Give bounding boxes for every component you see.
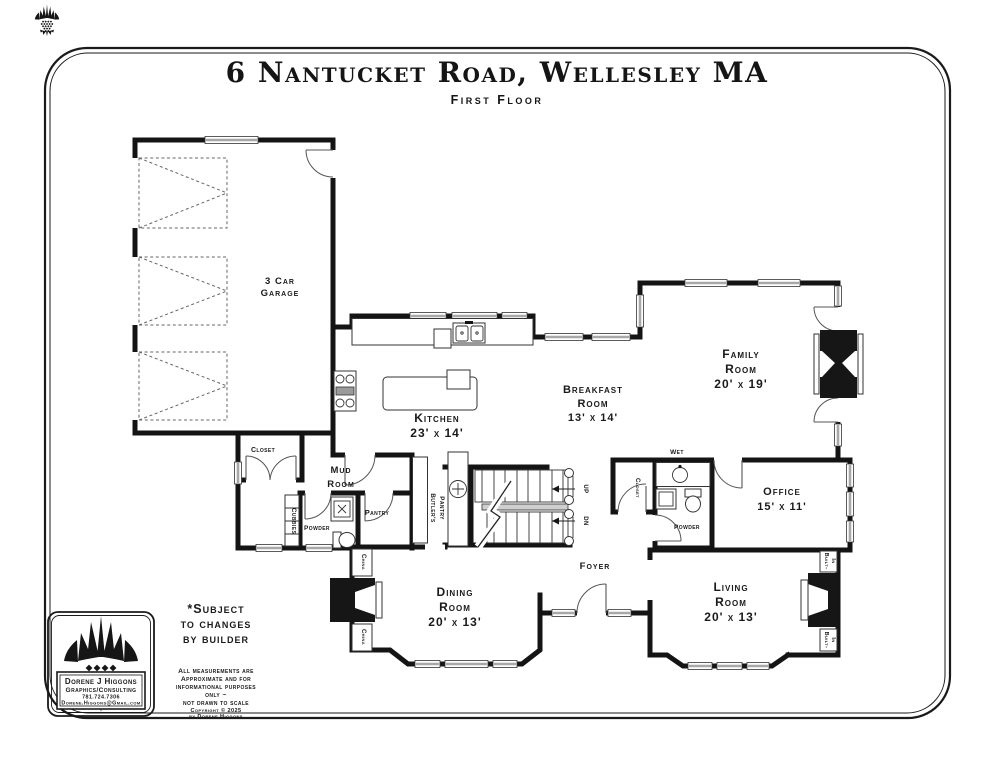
range — [334, 371, 356, 411]
corner-pineapple-icon — [35, 4, 59, 36]
family-fireplace — [814, 330, 863, 398]
room-label-closet-foyer: Closet — [634, 478, 640, 498]
label-built-in-lower: In — [830, 637, 836, 642]
disclaimer-note: All measurements are Approximate and for… — [176, 668, 256, 720]
copyright-line: by Dorene Higgons — [189, 714, 243, 720]
room-label-garage: 3 Car — [265, 276, 295, 287]
label-built-in-lower: Built- — [823, 632, 829, 649]
dishwasher — [434, 329, 451, 348]
label-stairs-down: DN — [582, 516, 588, 525]
room-dim-breakfast: 13' x 14' — [568, 412, 618, 424]
toilet — [333, 532, 355, 548]
room-dim-family: 20' x 19' — [714, 377, 767, 391]
logo-name: Dorene J Higgons — [65, 677, 137, 686]
newel-post — [565, 537, 574, 546]
disclaimer-line: informational purposes — [176, 684, 256, 691]
logo-tagline: Graphics/Consulting — [66, 687, 137, 694]
newel-post — [565, 469, 574, 478]
note-subject: *Subject — [187, 602, 244, 616]
room-dim-dining: 20' x 13' — [428, 615, 481, 629]
room-label-dining: Room — [439, 600, 471, 614]
page-subtitle: First Floor — [451, 93, 544, 107]
room-label-living: Living — [713, 580, 748, 594]
powder-sink — [656, 489, 676, 509]
floor-plan-page: 6 Nantucket Road, Wellesley MA First Flo… — [0, 0, 994, 768]
room-label-breakfast: Room — [577, 398, 608, 410]
stair-down-arrow — [552, 518, 575, 525]
room-label-mud: Mud — [330, 465, 351, 476]
room-label-closet-mud: Closet — [251, 447, 275, 454]
label-stairs-up: UP — [582, 484, 588, 493]
room-label-powder-mud: Powder — [304, 525, 330, 532]
kitchen-fixtures — [334, 319, 533, 412]
page-title: 6 Nantucket Road, Wellesley MA — [226, 56, 769, 89]
room-label-powder-foyer: Powder — [674, 524, 700, 531]
floor-plan-svg: 6 Nantucket Road, Wellesley MA First Flo… — [0, 0, 994, 768]
room-label-garage: Garage — [261, 288, 300, 299]
powder-sink — [331, 497, 353, 521]
kitchen-sink — [453, 321, 485, 343]
floor-plan: 3 Car Garage Closet Mud Room Cubbies Pow… — [48, 137, 863, 721]
note-subject: to changes — [181, 617, 252, 631]
room-dim-kitchen: 23' x 14' — [410, 426, 463, 440]
room-label-pantry: Pantry — [365, 508, 390, 517]
room-label-breakfast: Breakfast — [563, 384, 623, 396]
room-label-family: Room — [725, 362, 757, 376]
island-bar-counter — [447, 370, 470, 389]
living-fireplace — [801, 573, 838, 627]
wet-bar-fixtures — [656, 463, 710, 487]
disclaimer-line: Approximate and for — [181, 676, 251, 683]
windows — [205, 137, 854, 670]
room-label-kitchen: Kitchen — [414, 411, 459, 425]
copyright-line: Copyright © 2025 — [190, 707, 241, 714]
stair-up-arrow — [552, 486, 575, 493]
room-label-mud: Room — [327, 479, 355, 490]
newel-post — [565, 496, 574, 505]
wet-bar-counter — [656, 463, 710, 487]
room-label-wet-bar: Bar — [670, 457, 683, 464]
room-label-butlers-pantry: Pantry — [438, 496, 445, 520]
room-label-butlers-pantry: Butler's — [429, 493, 436, 523]
newel-post — [565, 510, 574, 519]
disclaimer-line: not drawn to scale — [183, 700, 249, 707]
room-label-wet-bar: Wet — [670, 449, 684, 456]
room-label-family: Family — [722, 347, 759, 361]
logo-email: Dorene.Higgons@Gmail.com — [61, 701, 140, 707]
room-dim-living: 20' x 13' — [704, 610, 757, 624]
label-china-upper: China — [360, 554, 366, 570]
logo: Dorene J Higgons Graphics/Consulting 781… — [48, 612, 154, 716]
label-china-lower: China — [360, 629, 366, 645]
disclaimer-line: only ~ — [205, 692, 227, 699]
room-label-cubbies: Cubbies — [290, 508, 297, 535]
room-dim-office: 15' x 11' — [757, 501, 807, 513]
toilet — [685, 489, 701, 512]
room-label-foyer: Foyer — [580, 561, 611, 572]
label-built-in-upper: Built- — [823, 553, 829, 570]
stairs — [475, 469, 575, 548]
note-subject: by builder — [183, 632, 249, 646]
dining-fireplace — [330, 578, 382, 622]
builder-note: *Subject to changes by builder — [181, 602, 252, 646]
garage-door-symbols — [139, 158, 227, 420]
label-built-in-upper: In — [830, 558, 836, 563]
room-label-office: Office — [763, 486, 801, 498]
foyer-powder-fixtures — [656, 489, 701, 512]
room-label-dining: Dining — [437, 585, 474, 599]
room-label-living: Room — [715, 595, 747, 609]
disclaimer-line: All measurements are — [178, 668, 254, 675]
